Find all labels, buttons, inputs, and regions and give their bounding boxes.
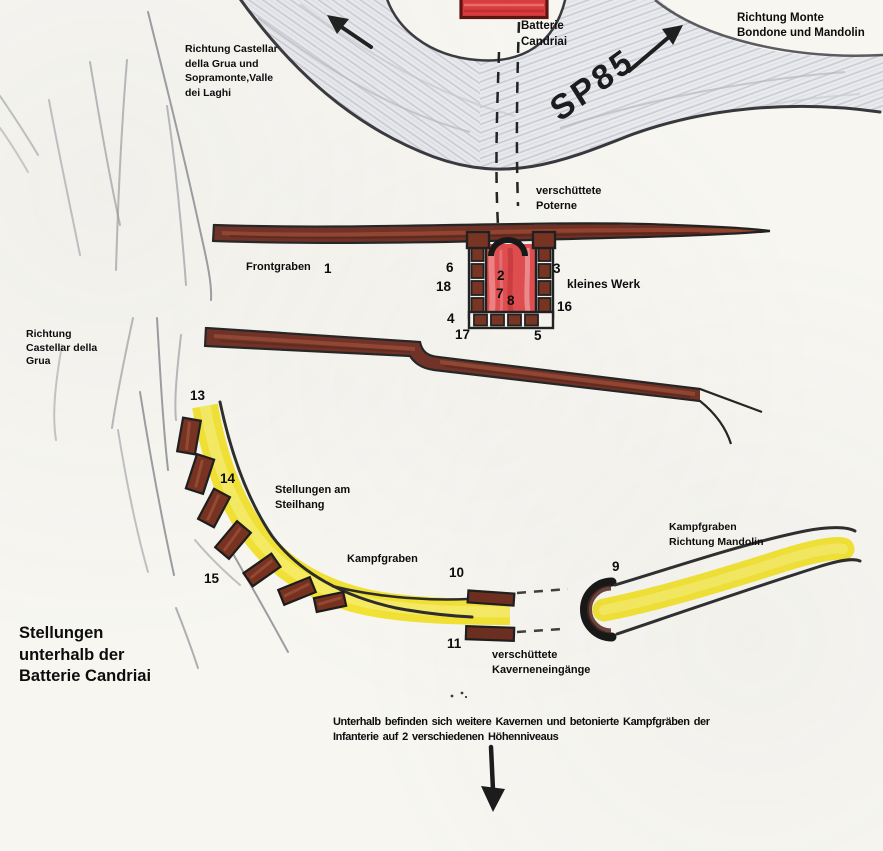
direction-label-northeast: Richtung Monte Bondone und Mandolin — [737, 11, 865, 41]
map-marker-14: 14 — [220, 471, 235, 486]
frontgraben-trench — [213, 223, 770, 243]
map-marker-1: 1 — [324, 261, 332, 276]
battery-candriai-rect — [461, 0, 547, 18]
second-trench — [205, 327, 762, 444]
kleines-werk-label: kleines Werk — [567, 277, 640, 291]
map-marker-7: 7 — [496, 286, 504, 301]
map-marker-2: 2 — [497, 268, 505, 283]
kleines-werk-fort — [467, 232, 555, 328]
map-marker-18: 18 — [436, 279, 451, 294]
map-marker-16: 16 — [557, 299, 572, 314]
map-marker-11: 11 — [447, 636, 461, 651]
map-marker-5: 5 — [534, 328, 542, 343]
kaverneneingaenge-label: verschüttete Kaverneneingänge — [492, 648, 590, 678]
gap-dashes — [517, 589, 568, 593]
map-marker-15: 15 — [204, 571, 219, 586]
map-marker-3: 3 — [553, 261, 561, 276]
kampfgraben-mandolin-label: Kampfgraben Richtung Mandolin — [669, 520, 764, 549]
steilhang-label: Stellungen am Steilhang — [275, 483, 350, 512]
hand-drawn-map: Richtung Castellar della Grua und Sopram… — [0, 0, 883, 851]
map-marker-10: 10 — [449, 565, 464, 580]
battery-candriai-label: Batterie Candriai — [521, 19, 567, 50]
map-note: Unterhalb befinden sich weitere Kavernen… — [333, 715, 710, 744]
poterne-label: verschüttete Poterne — [536, 184, 601, 214]
map-title: Stellungen unterhalb der Batterie Candri… — [19, 623, 151, 688]
frontgraben-label: Frontgraben — [246, 261, 311, 273]
map-marker-13: 13 — [190, 388, 205, 403]
map-marker-9: 9 — [612, 559, 620, 574]
arrow-south — [481, 747, 505, 812]
map-marker-17: 17 — [455, 327, 470, 342]
map-marker-8: 8 — [507, 293, 515, 308]
map-marker-6: 6 — [446, 260, 454, 275]
direction-label-west: Richtung Castellar della Grua — [26, 328, 97, 369]
pencil-marks — [451, 692, 468, 699]
kampfgraben-label: Kampfgraben — [347, 553, 418, 565]
direction-label-northwest: Richtung Castellar della Grua und Sopram… — [185, 42, 278, 100]
map-marker-4: 4 — [447, 311, 455, 326]
